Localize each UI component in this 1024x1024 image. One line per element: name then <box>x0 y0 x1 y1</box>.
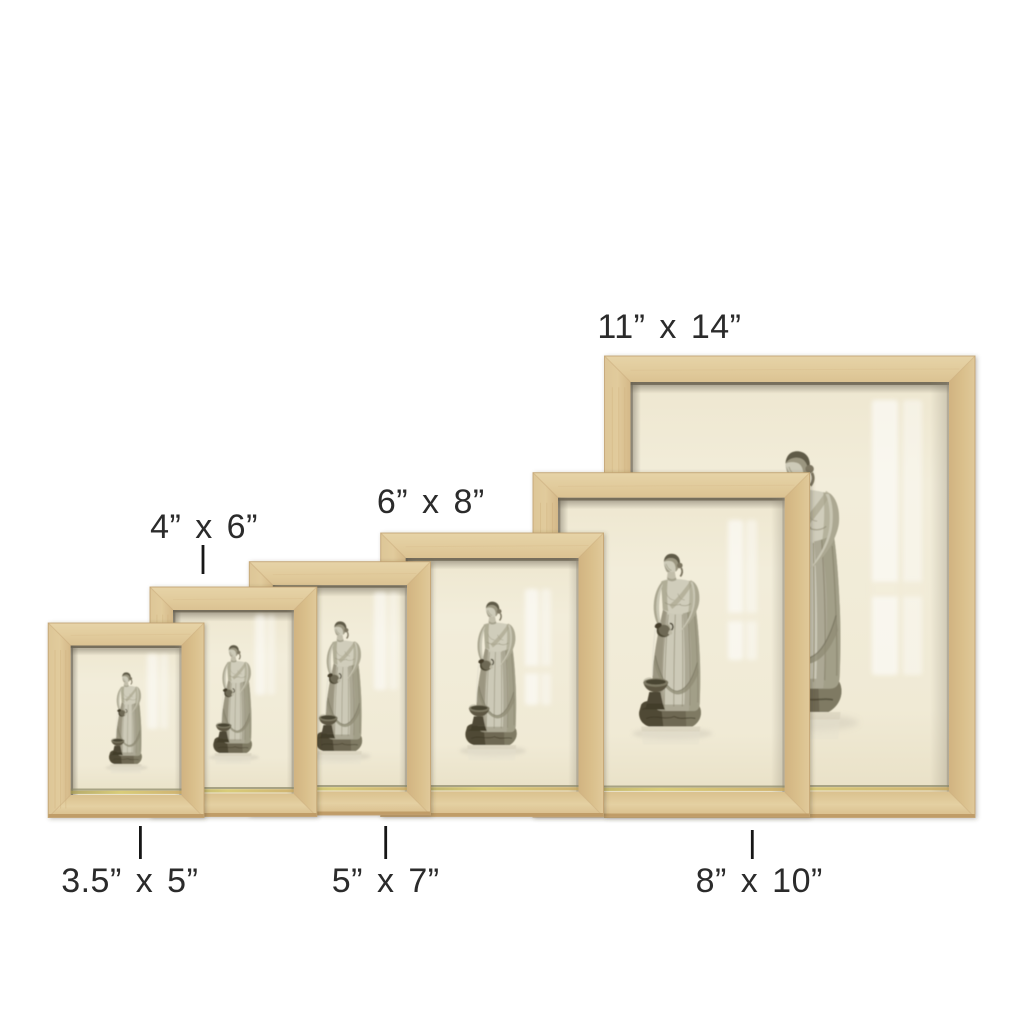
svg-text:8” x 10”: 8” x 10” <box>696 862 823 900</box>
svg-text:4” x 6”: 4” x 6” <box>150 508 258 546</box>
svg-text:11” x 14”: 11” x 14” <box>597 308 741 346</box>
svg-text:6” x 8”: 6” x 8” <box>377 483 485 521</box>
svg-text:5” x 7”: 5” x 7” <box>332 862 440 900</box>
svg-text:3.5” x 5”: 3.5” x 5” <box>61 862 198 900</box>
